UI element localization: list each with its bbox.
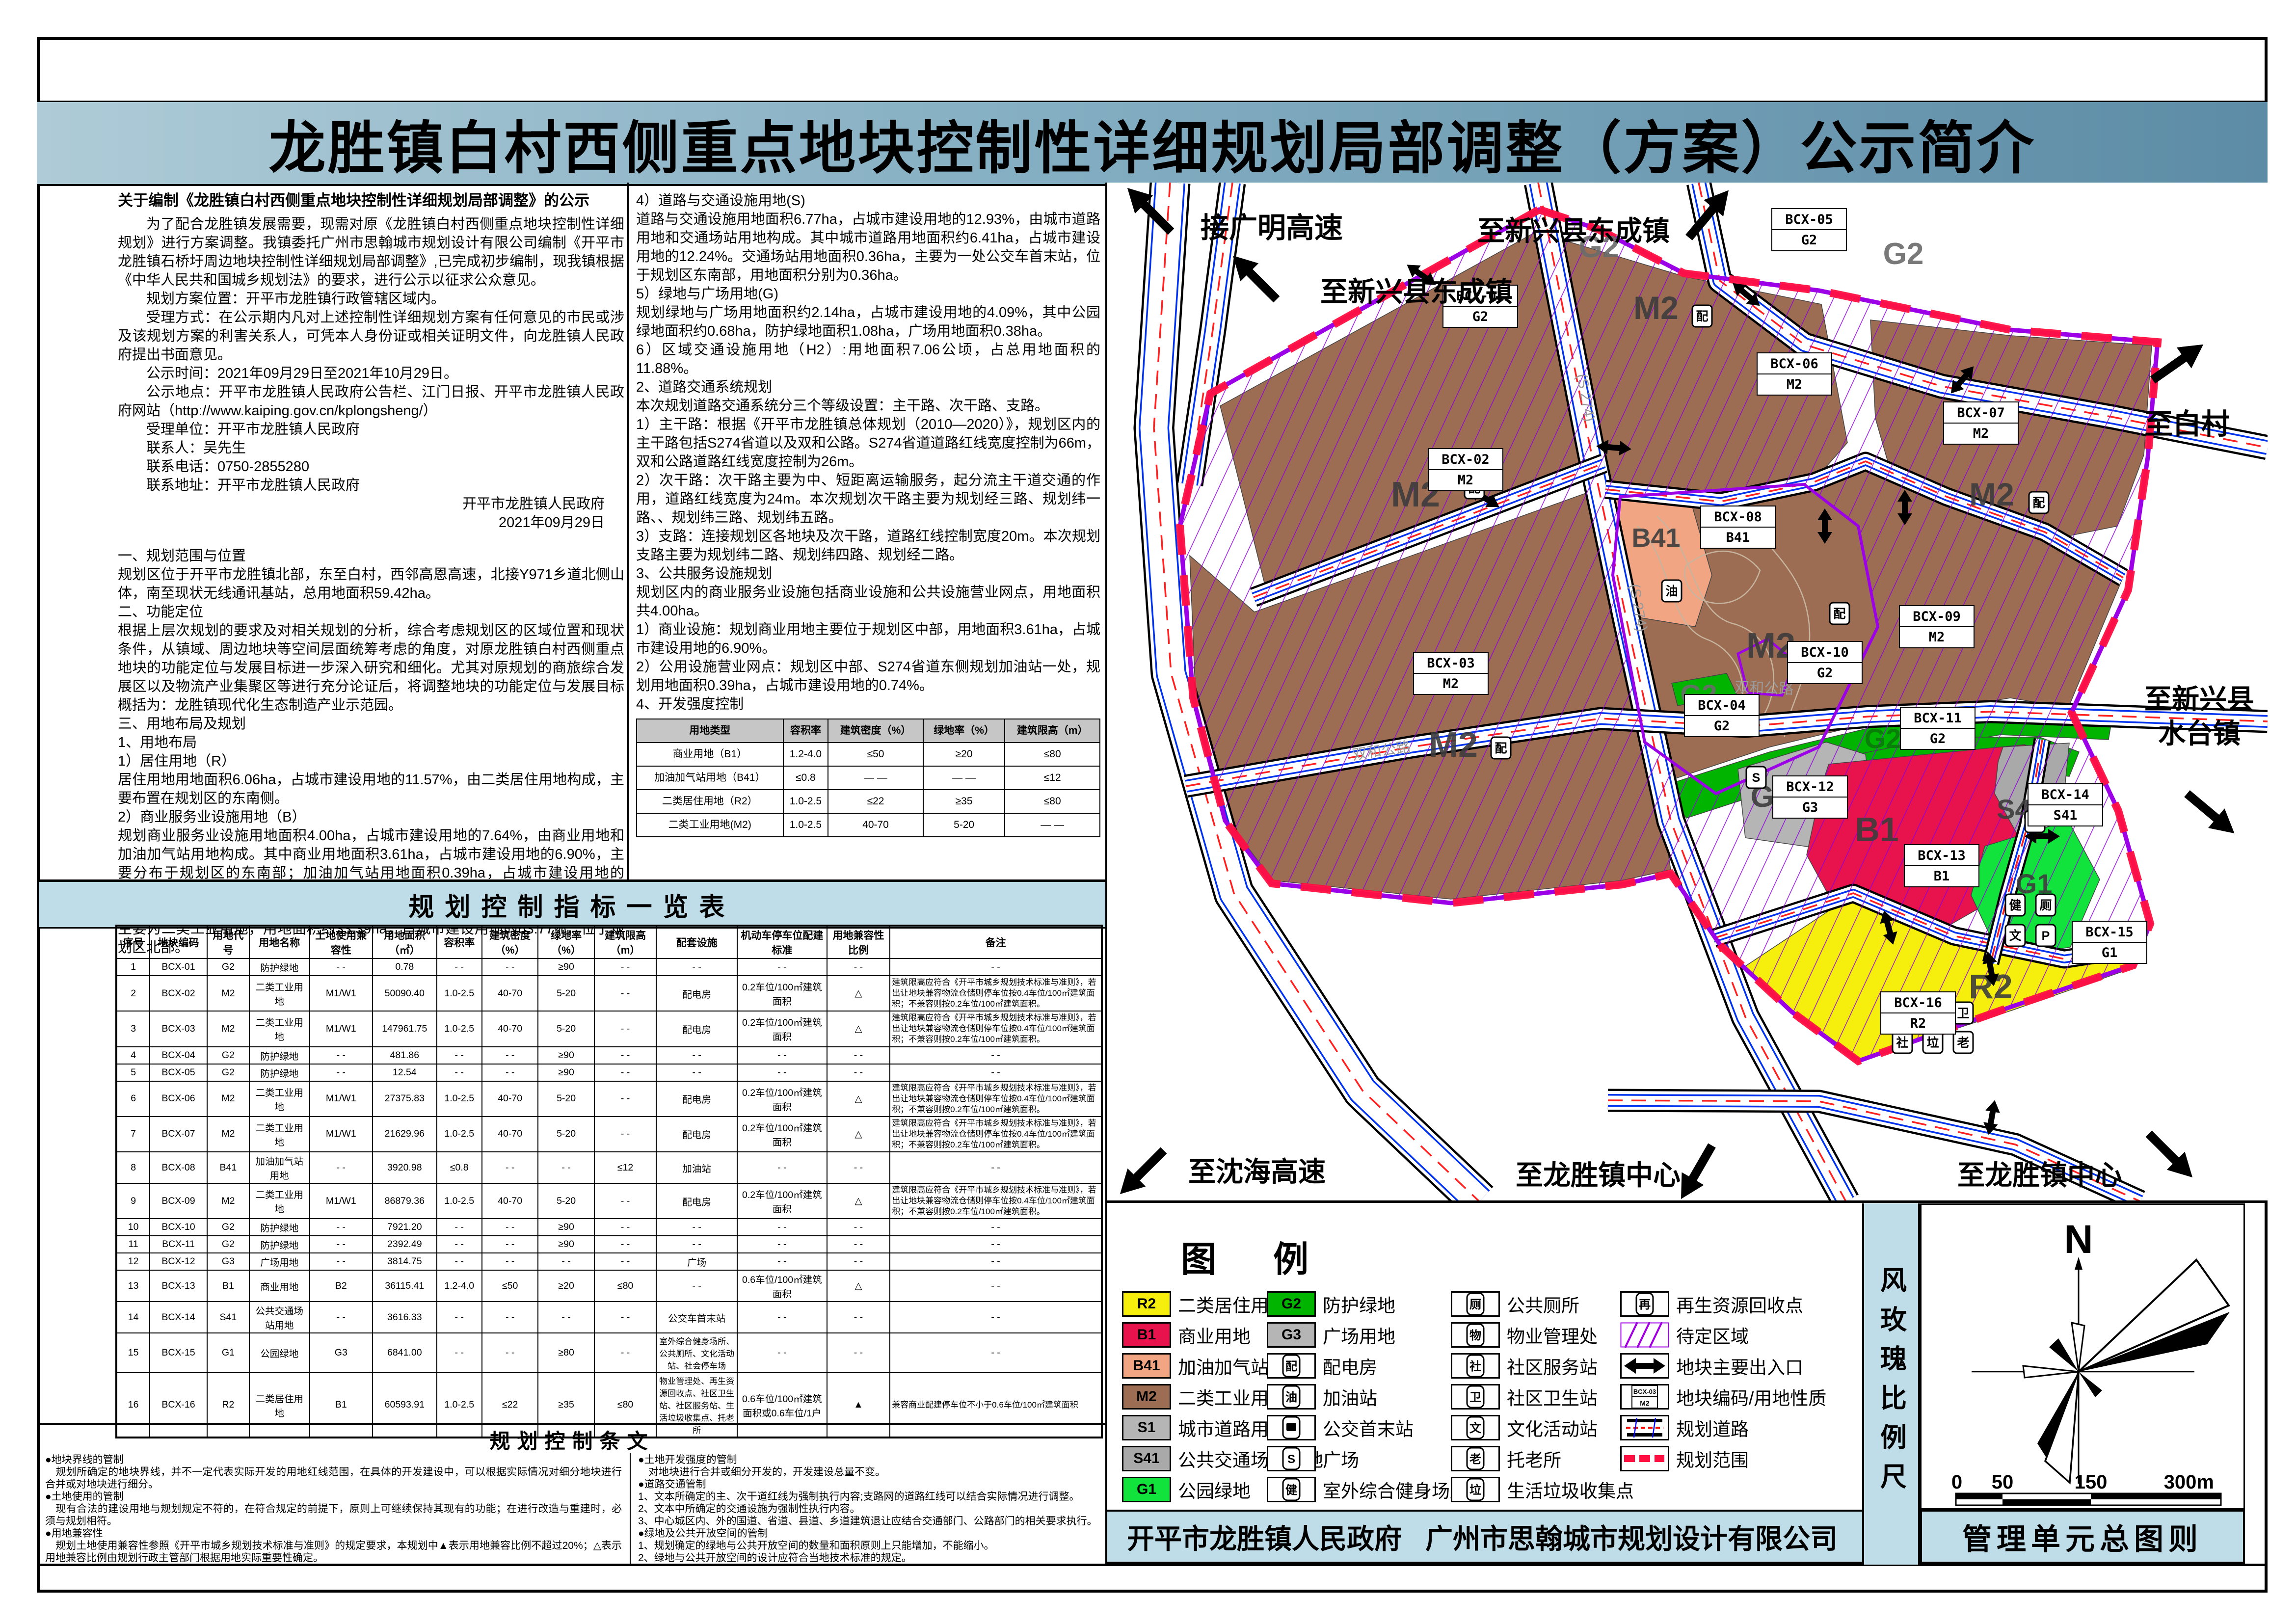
control-row-BCX-04: 4BCX-04G2防护绿地- -481.86- -- -≥90- -- -- -… — [116, 1047, 1102, 1064]
legend-label: 广场 — [1323, 1445, 1359, 1472]
legend-item-roadsym: 规划道路 — [1620, 1414, 1749, 1441]
parcel-type-label: M2 — [1969, 476, 2014, 512]
provision-line: 3、中心城区内、外的国道、省道、县道、乡道建筑退让应结合交通部门、公路部门的相关… — [638, 1515, 1099, 1527]
legend-item-M2: M2二类工业用地 — [1122, 1384, 1287, 1410]
legend-title: 图 例 — [1181, 1230, 1332, 1282]
svg-text:0: 0 — [1951, 1471, 1962, 1493]
svg-text:G2: G2 — [1930, 731, 1946, 746]
windrose-panel: N 0 50 150 300m — [1920, 1203, 2245, 1510]
legend-item-B1: B1商业用地 — [1122, 1322, 1251, 1348]
provisions-title: 规划控制条文 — [39, 1426, 1105, 1453]
legend-glyph-inout — [1620, 1353, 1669, 1379]
legend-swatch-B41: B41 — [1122, 1353, 1171, 1379]
control-header: 地块编码 — [150, 926, 207, 958]
svg-text:G1: G1 — [2102, 945, 2118, 960]
facility-icon-P: P — [2036, 925, 2056, 946]
control-row-BCX-15: 15BCX-15G1公园绿地G36841.00- -- -≥80- -室外综合健… — [116, 1333, 1102, 1373]
svg-text:M2: M2 — [1973, 426, 1989, 441]
svg-text:BCX-15: BCX-15 — [2085, 925, 2134, 940]
legend-item-健: 健室外综合健身场所 — [1267, 1476, 1468, 1503]
svg-text:社: 社 — [1896, 1036, 1908, 1050]
legend-item-R2: R2二类居住用地 — [1122, 1291, 1287, 1317]
svg-text:G2: G2 — [1472, 309, 1489, 324]
control-row-BCX-02: 2BCX-02M2二类工业用地M1/W150090.401.0-2.540-70… — [116, 976, 1102, 1011]
legend-label: 防护绿地 — [1323, 1291, 1395, 1317]
control-table-wrap: 序号地块编码用地代号用地名称土地使用兼容性用地面积（㎡）容积率建筑密度（%）绿地… — [115, 925, 1103, 1423]
direction-label: 至龙胜镇中心 — [1516, 1160, 1681, 1191]
parcel-type-label: M2 — [1429, 725, 1478, 765]
svg-text:配: 配 — [1696, 310, 1708, 323]
svg-text:文: 文 — [2009, 929, 2022, 943]
legend-label: 社区服务站 — [1507, 1353, 1598, 1379]
svg-text:G2: G2 — [1817, 666, 1833, 681]
notice-paragraph: 一、规划范围与位置 — [118, 547, 624, 565]
legend-label: 公园绿地 — [1178, 1476, 1251, 1503]
legend-label: 配电房 — [1323, 1353, 1377, 1379]
facility-icon-配: 配 — [2029, 492, 2049, 513]
parcel-type-label: M2 — [1633, 290, 1679, 326]
provision-line: 规划所确定的地块界线，并不一定代表实际开发的用地红线范围，在具体的开发建设中，可… — [45, 1466, 622, 1491]
planning-notice-poster: { "title": "龙胜镇白村西侧重点地块控制性详细规划局部调整（方案）公示… — [0, 0, 2296, 1624]
svg-text:M2: M2 — [1787, 377, 1803, 392]
legend-glyph-厕: 厕 — [1451, 1291, 1500, 1317]
notice-paragraph: 公示地点：开平市龙胜镇人民政府公告栏、江门日报、开平市龙胜镇人民政府网站（htt… — [118, 383, 624, 420]
parcel-label-BCX-05: BCX-05G2 — [1772, 209, 1846, 251]
control-header: 用地兼容性比例 — [827, 926, 890, 958]
legend-item-物: 物物业管理处 — [1451, 1322, 1598, 1348]
legend-swatch-R2: R2 — [1122, 1291, 1171, 1317]
facility-icon-垃: 垃 — [1923, 1032, 1943, 1053]
legend-item-S1: S1城市道路用地 — [1122, 1414, 1287, 1441]
plan-text-column: 4）道路与交通设施用地(S)道路与交通设施用地面积6.77ha，占城市建设用地的… — [636, 191, 1100, 879]
svg-text:BCX-08: BCX-08 — [1714, 509, 1762, 525]
legend-item-厕: 厕公共厕所 — [1451, 1291, 1579, 1317]
legend-glyph-油: 油 — [1267, 1384, 1316, 1410]
control-header: 用地名称 — [249, 926, 309, 958]
title-banner: 龙胜镇白村西侧重点地块控制性详细规划局部调整（方案）公示简介 — [37, 101, 2268, 186]
control-header: 用地面积（㎡） — [373, 926, 437, 958]
svg-text:配: 配 — [1495, 742, 1507, 755]
parcel-label-BCX-14: BCX-14S41 — [2028, 784, 2103, 826]
notice-paragraph: 2）商业服务业设施用地（B） — [118, 808, 624, 826]
svg-text:50: 50 — [1992, 1471, 2014, 1493]
legend-glyph-bus — [1267, 1415, 1316, 1440]
notice-paragraph: 联系电话：0750-2855280 — [118, 457, 624, 476]
svg-text:M2: M2 — [1443, 676, 1459, 692]
control-row-BCX-05: 5BCX-05G2防护绿地- -12.54- -- -≥90- -- -- --… — [116, 1064, 1102, 1081]
legend-item-inout: 地块主要出入口 — [1620, 1353, 1803, 1379]
direction-label: 至龙胜镇中心 — [1957, 1160, 2122, 1191]
legend-label: 室外综合健身场所 — [1323, 1476, 1468, 1503]
facility-icon-老: 老 — [1953, 1032, 1973, 1053]
provision-line: ●土地开发强度的管制 — [638, 1454, 1099, 1466]
svg-text:物: 物 — [1469, 1329, 1481, 1342]
notice-paragraph: 规划方案位置：开平市龙胜镇行政管辖区域内。 — [118, 290, 624, 308]
legend-glyph-文: 文 — [1451, 1415, 1500, 1440]
svg-text:G3: G3 — [1802, 800, 1818, 815]
intensity-row: 二类居住用地（R2）1.0-2.5≤22≥35≤80 — [637, 790, 1100, 813]
provision-line: ●用地兼容性 — [45, 1527, 622, 1540]
legend-item-G1: G1公园绿地 — [1122, 1476, 1251, 1503]
legend-label: 托老所 — [1507, 1445, 1561, 1472]
direction-label: 至新兴县 — [2144, 684, 2254, 715]
planning-map: (S 274)(S 274)双和公路双和公路M2M2M2M2B41M2G3B1S… — [1107, 183, 2268, 1200]
divider — [1105, 1200, 2268, 1203]
legend-item-codebox: BCX-03M2地块编码/用地性质 — [1620, 1384, 1826, 1410]
svg-text:健: 健 — [1285, 1484, 1297, 1497]
svg-text:BCX-14: BCX-14 — [2041, 787, 2089, 802]
direction-label: 水台镇 — [2158, 718, 2241, 749]
svg-text:BCX-07: BCX-07 — [1957, 405, 2005, 421]
control-header: 土地使用兼容性 — [310, 926, 373, 958]
legend-label: 商业用地 — [1178, 1322, 1251, 1348]
parcel-label-BCX-07: BCX-07M2 — [1944, 402, 2018, 444]
plan-paragraph: 2）公用设施营业网点：规划区中部、S274省道东侧规划加油站一处，规划用地面积0… — [636, 658, 1100, 695]
legend-panel: 图 例 R2二类居住用地B1商业用地B41加油加气站用地M2二类工业用地S1城市… — [1107, 1203, 1862, 1510]
control-row-BCX-08: 8BCX-08B41加油加气站用地- -3920.98≤0.8- -- -≤12… — [116, 1152, 1102, 1183]
facility-icon-文: 文 — [2005, 925, 2025, 946]
legend-swatch-G2: G2 — [1267, 1291, 1316, 1317]
svg-text:老: 老 — [1469, 1453, 1481, 1466]
notice-paragraph: 规划区位于开平市龙胜镇北部，东至白村，西邻高恩高速，北接Y971乡道北侧山体，南… — [118, 565, 624, 603]
legend-item-文: 文文化活动站 — [1451, 1414, 1598, 1441]
svg-text:B1: B1 — [1934, 869, 1950, 884]
footer-design-firm: 广州市思翰城市规划设计有限公司 — [1425, 1517, 1862, 1557]
svg-text:G2: G2 — [1714, 719, 1730, 734]
svg-text:M2: M2 — [1458, 473, 1474, 488]
facility-icon-配: 配 — [1491, 737, 1511, 759]
svg-text:BCX-09: BCX-09 — [1913, 609, 1961, 624]
svg-text:BCX-10: BCX-10 — [1801, 645, 1849, 660]
notice-paragraph: 开平市龙胜镇人民政府 — [118, 495, 624, 513]
legend-swatch-G1: G1 — [1122, 1477, 1171, 1502]
legend-item-油: 油加油站 — [1267, 1384, 1377, 1410]
svg-text:BCX-11: BCX-11 — [1914, 711, 1962, 726]
svg-text:150: 150 — [2075, 1471, 2108, 1493]
legend-label: 广场用地 — [1323, 1322, 1395, 1348]
provision-line: 对地块进行合并或细分开发的，开发建设总量不变。 — [638, 1466, 1099, 1478]
plan-paragraph: 3）支路：连接规划区各地块及次干路，道路红线控制宽度20m。本次规划支路主要为规… — [636, 527, 1100, 564]
svg-text:配: 配 — [1285, 1360, 1297, 1373]
intensity-header: 建筑密度（%） — [828, 719, 923, 743]
control-header: 绿地率（%） — [538, 926, 594, 958]
svg-text:BCX-03: BCX-03 — [1427, 656, 1475, 671]
legend-glyph-卫: 卫 — [1451, 1384, 1500, 1410]
legend-item-卫: 卫社区卫生站 — [1451, 1384, 1598, 1410]
svg-text:油: 油 — [1285, 1391, 1297, 1404]
column-divider-1 — [627, 183, 629, 879]
control-header: 容积率 — [437, 926, 482, 958]
legend-item-hatch: 待定区域 — [1620, 1322, 1749, 1348]
control-row-BCX-12: 12BCX-12G3广场用地- -3814.75- -- -- -- -广场- … — [116, 1253, 1102, 1270]
svg-text:油: 油 — [1665, 585, 1678, 598]
control-row-BCX-10: 10BCX-10G2防护绿地- -7921.20- -- -≥90- -- --… — [116, 1219, 1102, 1236]
legend-label: 物业管理处 — [1507, 1322, 1598, 1348]
plan-paragraph: 1）主干路：根据《开平市龙胜镇总体规划（2010—2020）》，规划区内的主干路… — [636, 415, 1100, 471]
svg-text:BCX-03: BCX-03 — [1633, 1388, 1656, 1395]
parcel-label-BCX-15: BCX-15G1 — [2072, 921, 2147, 963]
legend-glyph-hatch — [1620, 1322, 1669, 1348]
provision-line: 2、文本中所确定的交通设施为强制性执行内容。 — [638, 1503, 1099, 1515]
north-label: N — [2064, 1217, 2093, 1262]
svg-text:配: 配 — [1833, 607, 1845, 621]
provisions-divider — [630, 1453, 631, 1564]
notice-paragraph: 2021年09月29日 — [118, 513, 624, 532]
control-header: 机动车停车位配建标准 — [737, 926, 827, 958]
legend-item-bus: 公交首末站 — [1267, 1414, 1414, 1441]
legend-label: 公交首末站 — [1323, 1414, 1414, 1441]
legend-label: 加油站 — [1323, 1384, 1377, 1410]
svg-text:G2: G2 — [1801, 233, 1817, 248]
legend-glyph-社: 社 — [1451, 1353, 1500, 1379]
intensity-table: 用地类型容积率建筑密度（%）绿地率（%）建筑限高（m）商业用地（B1）1.2-4… — [636, 719, 1100, 837]
svg-text:S: S — [1287, 1453, 1295, 1466]
plan-paragraph: 本次规划道路交通系统分三个等级设置：主干路、次干路、支路。 — [636, 397, 1100, 415]
facility-icon-S: S — [1746, 767, 1766, 788]
svg-text:M2: M2 — [1640, 1399, 1650, 1407]
svg-text:健: 健 — [2009, 898, 2021, 912]
svg-text:BCX-12: BCX-12 — [1786, 779, 1834, 795]
svg-text:S41: S41 — [2054, 808, 2078, 823]
plan-paragraph: 5）绿地与广场用地(G) — [636, 285, 1100, 303]
control-row-BCX-03: 3BCX-03M2二类工业用地M1/W1147961.751.0-2.540-7… — [116, 1011, 1102, 1046]
parcel-label-BCX-03: BCX-03M2 — [1414, 652, 1488, 694]
notice-paragraph: 公示时间：2021年09月29日至2021年10月29日。 — [118, 364, 624, 383]
parcel-label-BCX-11: BCX-11G2 — [1900, 707, 1975, 749]
svg-text:BCX-13: BCX-13 — [1918, 848, 1966, 863]
svg-text:BCX-16: BCX-16 — [1894, 995, 1942, 1011]
intensity-row: 二类工业用地(M2)1.0-2.540-705-20— — — [637, 813, 1100, 837]
provisions-left: ●地块界线的管制 规划所确定的地块界线，并不一定代表实际开发的用地红线范围，在具… — [45, 1454, 622, 1563]
facility-icon-油: 油 — [1662, 580, 1682, 602]
parcel-label-BCX-02: BCX-02M2 — [1428, 449, 1503, 491]
notice-paragraph: 三、用地布局及规划 — [118, 715, 624, 733]
scale-bar: 0 50 150 300m — [1951, 1471, 2221, 1505]
svg-text:BCX-05: BCX-05 — [1785, 212, 1833, 227]
legend-swatch-M2: M2 — [1122, 1384, 1171, 1410]
control-row-BCX-06: 6BCX-06M2二类工业用地M1/W127375.831.0-2.540-70… — [116, 1081, 1102, 1117]
notice-paragraph: 联系人：吴先生 — [118, 439, 624, 457]
direction-label: 接广明高速 — [1201, 212, 1343, 244]
legend-label: 生活垃圾收集点 — [1507, 1476, 1634, 1503]
direction-label: 至白村 — [2144, 408, 2230, 440]
notice-paragraph: 受理方式：在公示期内凡对上述控制性详细规划方案有任何意见的市民或涉及该规划方案的… — [118, 308, 624, 364]
svg-text:M2: M2 — [1929, 630, 1945, 645]
svg-text:P: P — [2042, 929, 2050, 943]
direction-label: 至新兴县东成镇 — [1320, 276, 1513, 307]
control-row-BCX-09: 9BCX-09M2二类工业用地M1/W186879.361.0-2.540-70… — [116, 1183, 1102, 1219]
notice-paragraph: 关于编制《龙胜镇白村西侧重点地块控制性详细规划局部调整》的公示 — [118, 191, 624, 210]
legend-item-老: 老托老所 — [1451, 1445, 1561, 1472]
legend-label: 规划范围 — [1676, 1445, 1749, 1472]
parcel-type-label: G2 — [1883, 237, 1924, 271]
intensity-header: 建筑限高（m） — [1005, 719, 1100, 743]
svg-text:厕: 厕 — [1469, 1298, 1481, 1311]
legend-glyph-垃: 垃 — [1451, 1477, 1500, 1502]
notice-paragraph: 二、功能定位 — [118, 603, 624, 621]
legend-swatch-S1: S1 — [1122, 1415, 1171, 1440]
legend-label: 文化活动站 — [1507, 1414, 1598, 1441]
svg-text:文: 文 — [1469, 1421, 1482, 1435]
legend-glyph-S: S — [1267, 1446, 1316, 1471]
parcel-label-BCX-06: BCX-06M2 — [1757, 353, 1832, 395]
control-row-BCX-11: 11BCX-11G2防护绿地- -2392.49- -- -≥90- -- --… — [116, 1236, 1102, 1253]
legend-label: 地块编码/用地性质 — [1676, 1384, 1826, 1410]
facility-icon-社: 社 — [1893, 1032, 1912, 1053]
legend-glyph-再: 再 — [1620, 1291, 1669, 1317]
parcel-type-label: B1 — [1855, 810, 1898, 849]
provision-line: 1、规划确定的绿地与公共开放空间的数量和面积原则上只能增加，不能缩小。 — [638, 1540, 1099, 1552]
control-header: 备注 — [890, 926, 1102, 958]
plan-paragraph: 4、开发强度控制 — [636, 695, 1100, 714]
plan-paragraph: 4）道路与交通设施用地(S) — [636, 191, 1100, 210]
parcel-label-BCX-04: BCX-04G2 — [1684, 694, 1759, 737]
svg-text:B41: B41 — [1726, 530, 1750, 545]
page-title: 龙胜镇白村西侧重点地块控制性详细规划局部调整（方案）公示简介 — [269, 102, 2036, 185]
svg-text:厕: 厕 — [2039, 899, 2052, 912]
provision-line: 规划土地使用兼容性参照《开平市城乡规划技术标准与准则》的规定要求，本规划中▲表示… — [45, 1540, 622, 1564]
provisions-right: ●土地开发强度的管制 对地块进行合并或细分开发的，开发建设总量不变。●道路交通管… — [638, 1454, 1099, 1563]
control-row-BCX-07: 7BCX-07M2二类工业用地M1/W121629.961.0-2.540-70… — [116, 1117, 1102, 1152]
divider — [39, 1564, 2268, 1566]
svg-text:S: S — [1752, 771, 1761, 785]
svg-text:垃: 垃 — [1926, 1036, 1939, 1050]
provision-line: ●地块界线的管制 — [45, 1454, 622, 1466]
control-table-title: 规划控制指标一览表 — [408, 886, 735, 923]
facility-icon-配: 配 — [1830, 603, 1849, 624]
svg-text:300m: 300m — [2164, 1471, 2214, 1493]
svg-text:BCX-06: BCX-06 — [1770, 356, 1818, 372]
notice-paragraph: 1）居住用地（R） — [118, 752, 624, 771]
legend-glyph-健: 健 — [1267, 1477, 1316, 1502]
facility-icon-厕: 厕 — [2036, 894, 2056, 916]
plan-paragraph: 1）商业设施：规划商业用地主要位于规划区中部，用地面积3.61ha，占城市建设用… — [636, 620, 1100, 658]
provision-line: 现有合法的建设用地与规划规定不符的，在符合规定的前提下，原则上可继续保持其现有的… — [45, 1503, 622, 1527]
intensity-header: 用地类型 — [637, 719, 783, 743]
control-indicator-table: 序号地块编码用地代号用地名称土地使用兼容性用地面积（㎡）容积率建筑密度（%）绿地… — [115, 925, 1103, 1438]
notice-column: 关于编制《龙胜镇白村西侧重点地块控制性详细规划局部调整》的公示为了配合龙胜镇发展… — [118, 191, 624, 879]
legend-item-G2: G2防护绿地 — [1267, 1291, 1395, 1317]
notice-paragraph: 受理单位：开平市龙胜镇人民政府 — [118, 420, 624, 439]
control-row-BCX-13: 13BCX-13B1商业用地B236115.411.2-4.0≤50≥20≤80… — [116, 1270, 1102, 1302]
control-header: 建筑限高（m） — [594, 926, 657, 958]
intensity-row: 商业用地（B1）1.2-4.0≤50≥20≤80 — [637, 743, 1100, 766]
provision-line: ●土地使用的管制 — [45, 1491, 622, 1503]
svg-text:BCX-04: BCX-04 — [1698, 698, 1746, 713]
svg-text:社: 社 — [1469, 1359, 1481, 1373]
legend-glyph-老: 老 — [1451, 1446, 1500, 1471]
legend-glyph-range — [1620, 1446, 1669, 1471]
parcel-label-BCX-13: BCX-13B1 — [1904, 845, 1979, 887]
svg-text:垃: 垃 — [1469, 1483, 1481, 1497]
provision-line: 2、绿地与公共开放空间的设计应符合当地技术标准的规定。 — [638, 1552, 1099, 1564]
legend-swatch-S41: S41 — [1122, 1446, 1171, 1471]
svg-text:老: 老 — [1957, 1036, 1969, 1050]
svg-text:卫: 卫 — [1469, 1391, 1481, 1404]
direction-label: 至新兴县东成镇 — [1477, 215, 1670, 246]
legend-label: 待定区域 — [1676, 1322, 1749, 1348]
windrose-scale-strip: 风玫瑰比例尺 — [1862, 1203, 1920, 1565]
legend-label: 公共厕所 — [1507, 1291, 1579, 1317]
legend-swatch-B1: B1 — [1122, 1322, 1171, 1348]
facility-icon-健: 健 — [2005, 894, 2025, 916]
legend-item-S: S广场 — [1267, 1445, 1359, 1472]
legend-item-垃: 垃生活垃圾收集点 — [1451, 1476, 1634, 1503]
parcel-type-label: B41 — [1631, 523, 1680, 553]
facility-icon-配: 配 — [1692, 305, 1712, 327]
svg-text:卫: 卫 — [1957, 1007, 1969, 1020]
parcel-label-BCX-16: BCX-16R2 — [1881, 992, 1955, 1034]
provision-line: ●道路交通管制 — [638, 1478, 1099, 1491]
plan-paragraph: 规划区内的商业服务业设施包括商业设施和公共设施营业网点，用地面积共4.00ha。 — [636, 583, 1100, 620]
facility-icon-卫: 卫 — [1953, 1002, 1973, 1024]
plan-paragraph: 2、道路交通系统规划 — [636, 378, 1100, 397]
plan-paragraph: 规划绿地与广场用地面积约2.14ha，占城市建设用地的4.09%，其中公园绿地面… — [636, 303, 1100, 341]
provision-line: 1、文本所确定的主、次干道红线为强制执行内容;支路网的道路红线可以结合实际情况进… — [638, 1491, 1099, 1503]
svg-text:配: 配 — [2032, 496, 2045, 510]
intensity-row: 加油加气站用地（B41）≤0.8— —— —≤12 — [637, 766, 1100, 790]
control-row-BCX-01: 1BCX-01G2防护绿地- -0.78- -- -≥90- -- -- -- … — [116, 958, 1102, 976]
footer-band: 开平市龙胜镇人民政府 广州市思翰城市规划设计有限公司 — [1107, 1510, 1862, 1564]
parcel-label-BCX-10: BCX-10G2 — [1788, 641, 1862, 684]
windrose-scale-strip-label: 风玫瑰比例尺 — [1872, 1266, 1911, 1502]
notice-paragraph: 居住用地用地面积6.06ha，占城市建设用地的11.57%，由二类居住用地构成，… — [118, 771, 624, 808]
notice-paragraph: 为了配合龙胜镇发展需要，现需对原《龙胜镇白村西侧重点地块控制性详细规划》进行方案… — [118, 215, 624, 290]
windrose-graphic: N 0 50 150 300m — [1922, 1205, 2243, 1508]
control-header: 用地代号 — [207, 926, 249, 958]
parcel-label-BCX-08: BCX-08B41 — [1701, 506, 1775, 548]
legend-item-range: 规划范围 — [1620, 1445, 1749, 1472]
parcel-type-label: G2 — [1865, 723, 1901, 754]
plan-paragraph: 6）区域交通设施用地（H2）:用地面积7.06公顷，占总用地面积的11.88%。 — [636, 341, 1100, 378]
plan-paragraph: 2）次干路：次干路主要为中、短距离运输服务，起分流主干道交通的作用，道路红线宽度… — [636, 471, 1100, 527]
notice-paragraph: 联系地址：开平市龙胜镇人民政府 — [118, 476, 624, 495]
svg-text:BCX-02: BCX-02 — [1442, 452, 1490, 467]
legend-glyph-配: 配 — [1267, 1353, 1316, 1379]
control-header: 配套设施 — [656, 926, 737, 958]
notice-paragraph: 根据上层次规划的要求及对相关规划的分析，综合考虑规划区的区域位置和现状条件，从镇… — [118, 621, 624, 715]
intensity-header: 绿地率（%） — [923, 719, 1005, 743]
legend-glyph-codebox: BCX-03M2 — [1620, 1384, 1669, 1410]
plan-paragraph: 3、公共服务设施规划 — [636, 564, 1100, 583]
svg-text:再: 再 — [1639, 1298, 1651, 1311]
legend-item-配: 配配电房 — [1267, 1353, 1377, 1379]
direction-label: 至沈海高速 — [1188, 1156, 1326, 1187]
footer-sheet-name: 管理单元总图则 — [1920, 1510, 2245, 1564]
legend-label: 再生资源回收点 — [1676, 1291, 1803, 1317]
parcel-label-BCX-12: BCX-12G3 — [1773, 776, 1847, 818]
legend-label: 地块主要出入口 — [1676, 1353, 1803, 1379]
control-header: 建筑密度（%） — [482, 926, 538, 958]
legend-glyph-物: 物 — [1451, 1322, 1500, 1348]
provision-line: ●绿地及公共开放空间的管制 — [638, 1527, 1099, 1540]
plan-paragraph: 道路与交通设施用地面积6.77ha，占城市建设用地的12.93%，由城市道路用地… — [636, 210, 1100, 285]
intensity-header: 容积率 — [783, 719, 828, 743]
svg-text:R2: R2 — [1910, 1016, 1926, 1031]
legend-label: 社区卫生站 — [1507, 1384, 1598, 1410]
control-table-banner: 规划控制指标一览表 — [39, 879, 1105, 929]
control-row-BCX-14: 14BCX-14S41公共交通场站用地- -3616.33- -- -- -- … — [116, 1302, 1102, 1333]
notice-paragraph: 1、用地布局 — [118, 733, 624, 752]
parcel-label-BCX-09: BCX-09M2 — [1899, 606, 1974, 648]
legend-label: 规划道路 — [1676, 1414, 1749, 1441]
control-header: 序号 — [116, 926, 150, 958]
footer-government: 开平市龙胜镇人民政府 — [1107, 1517, 1402, 1557]
legend-item-G3: G3广场用地 — [1267, 1322, 1395, 1348]
legend-item-社: 社社区服务站 — [1451, 1353, 1598, 1379]
legend-swatch-G3: G3 — [1267, 1322, 1316, 1348]
legend-item-再: 再再生资源回收点 — [1620, 1291, 1803, 1317]
